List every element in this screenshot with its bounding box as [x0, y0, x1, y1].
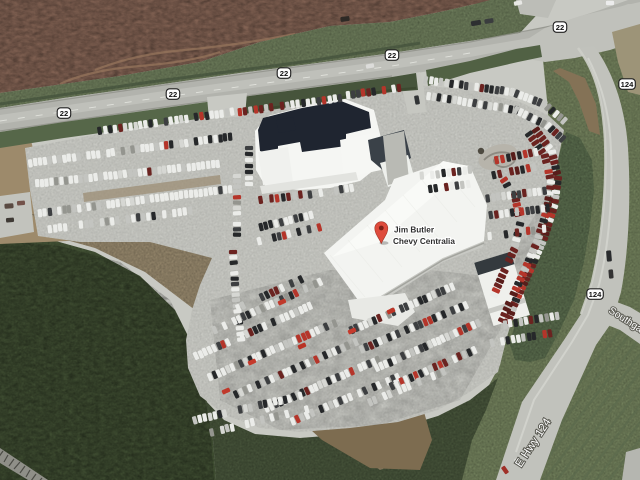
svg-text:Jim Butler: Jim Butler [394, 226, 435, 235]
svg-text:124: 124 [621, 80, 634, 89]
svg-text:124: 124 [589, 290, 602, 299]
svg-text:22: 22 [556, 23, 564, 32]
svg-text:22: 22 [280, 69, 288, 78]
svg-text:22: 22 [388, 51, 396, 60]
svg-text:22: 22 [169, 90, 177, 99]
svg-text:22: 22 [60, 109, 68, 118]
svg-text:Chevy Centralia: Chevy Centralia [393, 237, 455, 246]
